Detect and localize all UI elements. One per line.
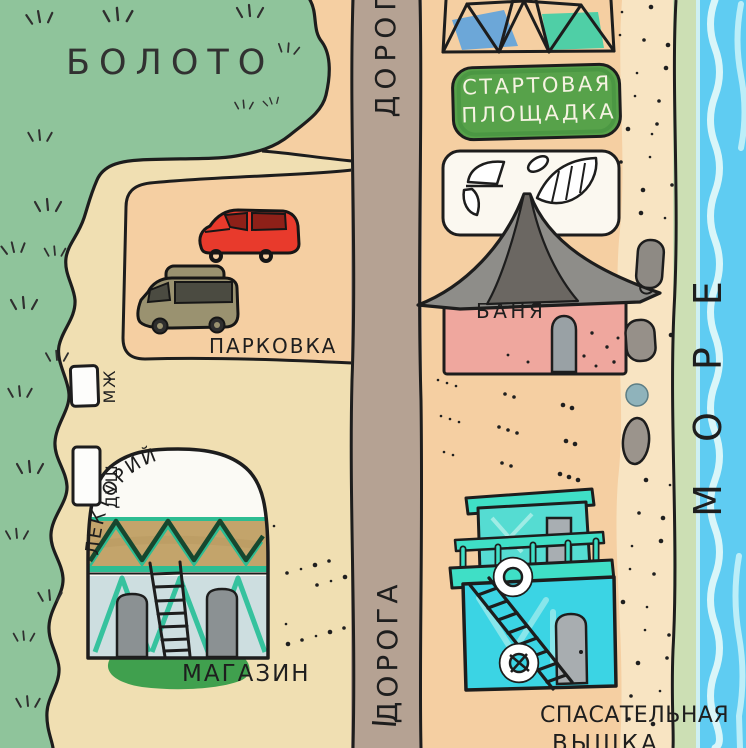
launch-pad-label-1: СТАРТОВАЯ: [462, 74, 612, 99]
bathhouse-label: БАНЯ: [476, 301, 546, 321]
shower-label: ДУШ: [104, 463, 120, 508]
swamp-label: БОЛОТО: [66, 46, 274, 81]
lifeguard-label-2: ВЫШКА: [552, 733, 660, 748]
parking-label: ПАРКОВКА: [209, 336, 337, 356]
shop-door: [117, 594, 147, 657]
shop-door: [207, 589, 237, 657]
map-canvas: ЛЕКТОРИЙ БОЛОТО ПАРКОВКА МАГАЗИН БАНЯ СТ…: [0, 0, 746, 748]
shower-cabin-icon: [73, 447, 100, 505]
stone-icon: [625, 319, 657, 362]
launch-pad-label-2: ПЛОЩАДКА: [461, 101, 617, 126]
bathhouse-door: [552, 316, 576, 372]
toilet-label: МЖ: [102, 368, 118, 403]
lifeguard-label-1: СПАСАТЕЛЬНАЯ: [540, 705, 729, 727]
tower-door: [556, 614, 587, 684]
shop-label: МАГАЗИН: [182, 663, 311, 686]
toilet-cabin-icon: [70, 366, 98, 407]
road-label-top: ДОРОГА: [372, 0, 400, 118]
sea-label: МОРЕ: [689, 239, 727, 517]
stone-icon: [626, 384, 648, 406]
road-label-bottom: ДОРОГА: [374, 580, 402, 723]
lifebuoy-icon: [500, 644, 538, 682]
